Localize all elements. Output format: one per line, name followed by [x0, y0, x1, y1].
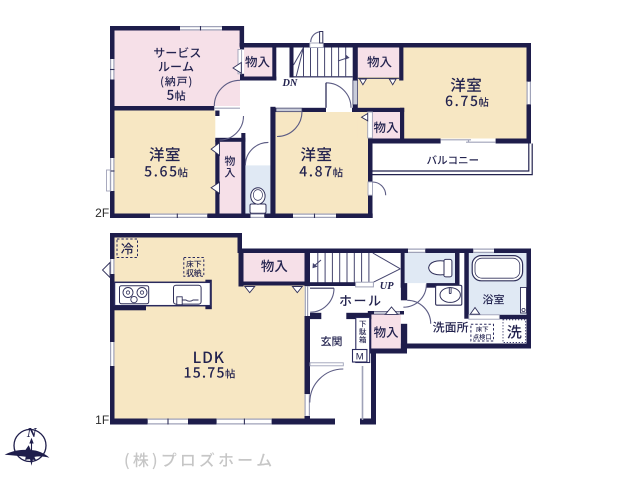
svg-text:M: M	[356, 352, 364, 363]
svg-text:1F: 1F	[95, 413, 109, 427]
svg-text:DN: DN	[282, 78, 298, 89]
svg-text:2F: 2F	[95, 206, 109, 220]
svg-text:N: N	[26, 425, 38, 440]
svg-text:UP: UP	[380, 281, 394, 292]
